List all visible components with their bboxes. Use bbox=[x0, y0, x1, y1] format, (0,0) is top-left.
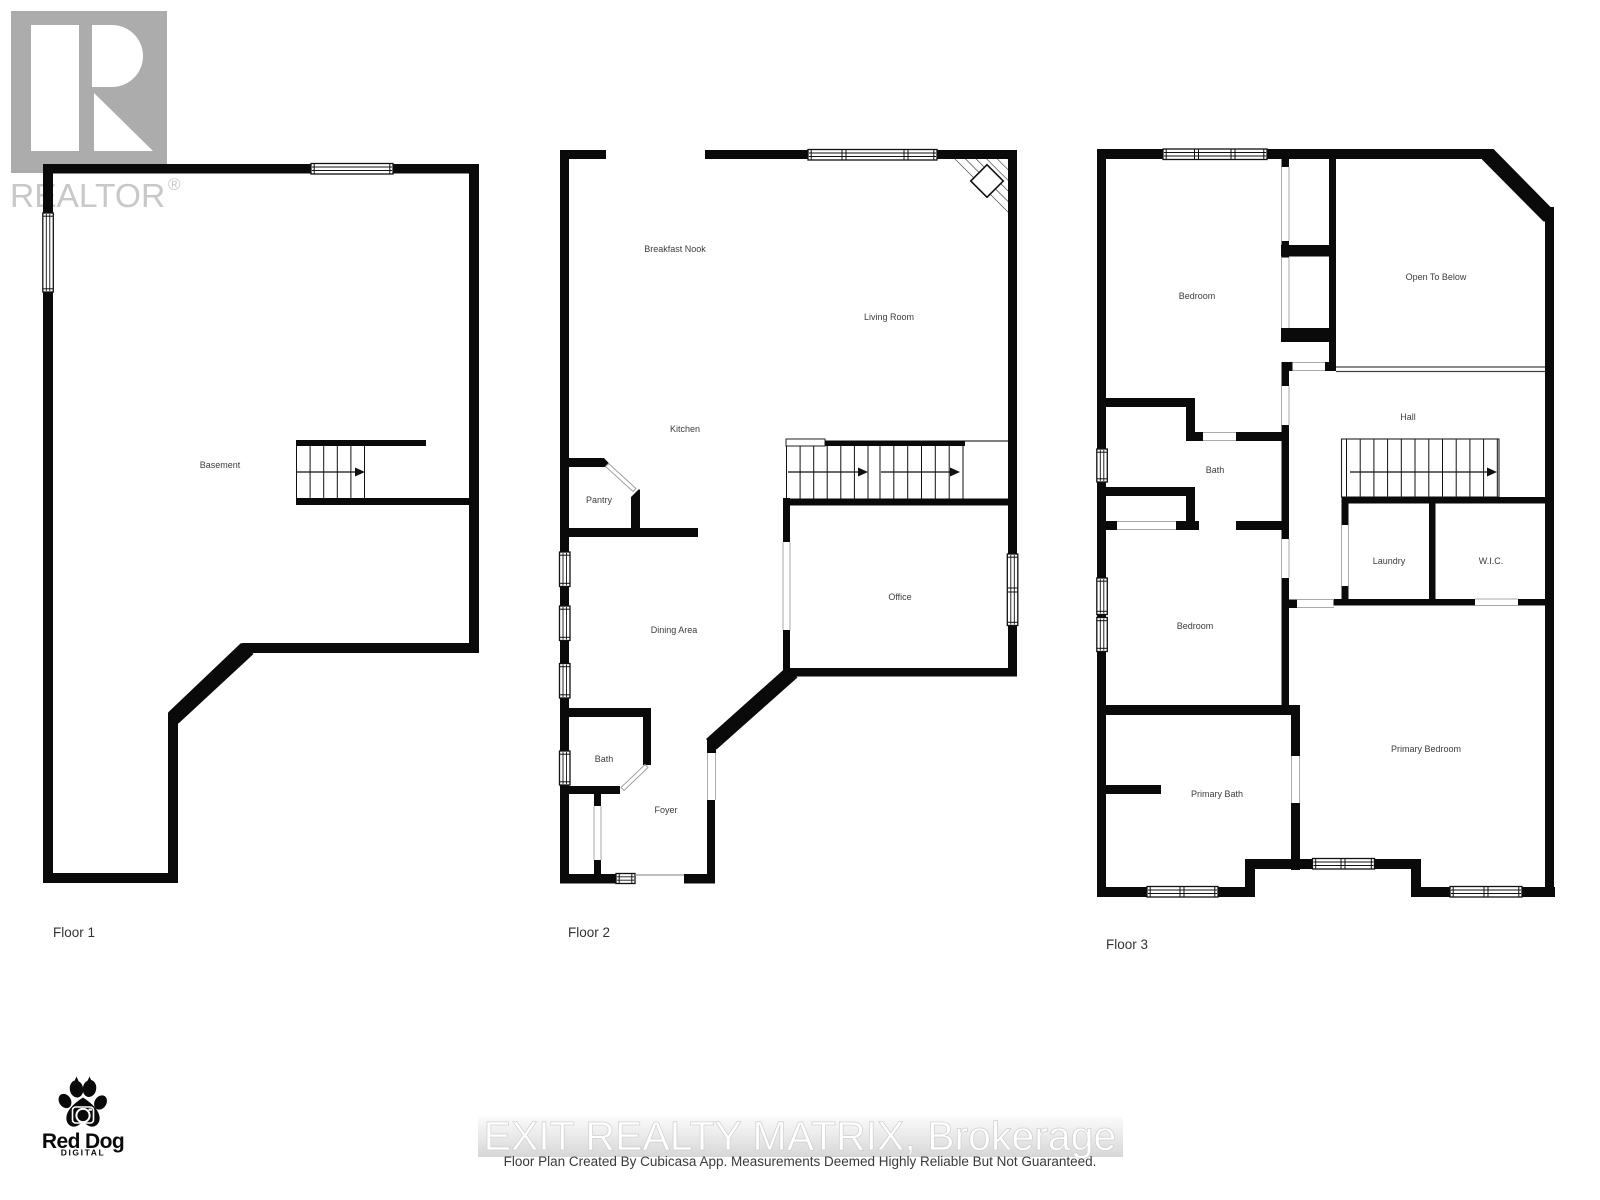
svg-text:Floor 1: Floor 1 bbox=[53, 925, 95, 940]
svg-text:EXIT REALTY MATRIX, Brokerage: EXIT REALTY MATRIX, Brokerage bbox=[484, 1113, 1117, 1159]
svg-text:Primary Bath: Primary Bath bbox=[1191, 789, 1243, 799]
svg-text:Primary Bedroom: Primary Bedroom bbox=[1391, 744, 1461, 754]
svg-text:Basement: Basement bbox=[200, 460, 241, 470]
svg-text:®: ® bbox=[168, 175, 181, 194]
svg-text:Hall: Hall bbox=[1400, 412, 1416, 422]
svg-text:Floor 3: Floor 3 bbox=[1106, 937, 1148, 952]
svg-text:Open To Below: Open To Below bbox=[1406, 272, 1467, 282]
svg-text:Floor 2: Floor 2 bbox=[568, 925, 610, 940]
svg-text:Bedroom: Bedroom bbox=[1179, 291, 1216, 301]
svg-text:Pantry: Pantry bbox=[586, 495, 613, 505]
svg-text:DIGITAL: DIGITAL bbox=[61, 1148, 106, 1158]
svg-text:Laundry: Laundry bbox=[1373, 556, 1406, 566]
svg-text:REALTOR: REALTOR bbox=[10, 178, 165, 215]
svg-text:Bedroom: Bedroom bbox=[1177, 621, 1214, 631]
svg-text:Kitchen: Kitchen bbox=[670, 424, 700, 434]
svg-text:Bath: Bath bbox=[1206, 465, 1225, 475]
svg-text:Dining Area: Dining Area bbox=[651, 625, 698, 635]
svg-text:Breakfast Nook: Breakfast Nook bbox=[644, 244, 706, 254]
svg-text:Floor Plan Created By Cubicasa: Floor Plan Created By Cubicasa App. Meas… bbox=[504, 1154, 1097, 1169]
svg-text:W.I.C.: W.I.C. bbox=[1479, 556, 1504, 566]
svg-text:Living Room: Living Room bbox=[864, 312, 914, 322]
svg-text:Bath: Bath bbox=[595, 754, 614, 764]
svg-text:Office: Office bbox=[888, 592, 911, 602]
svg-text:Foyer: Foyer bbox=[654, 805, 677, 815]
